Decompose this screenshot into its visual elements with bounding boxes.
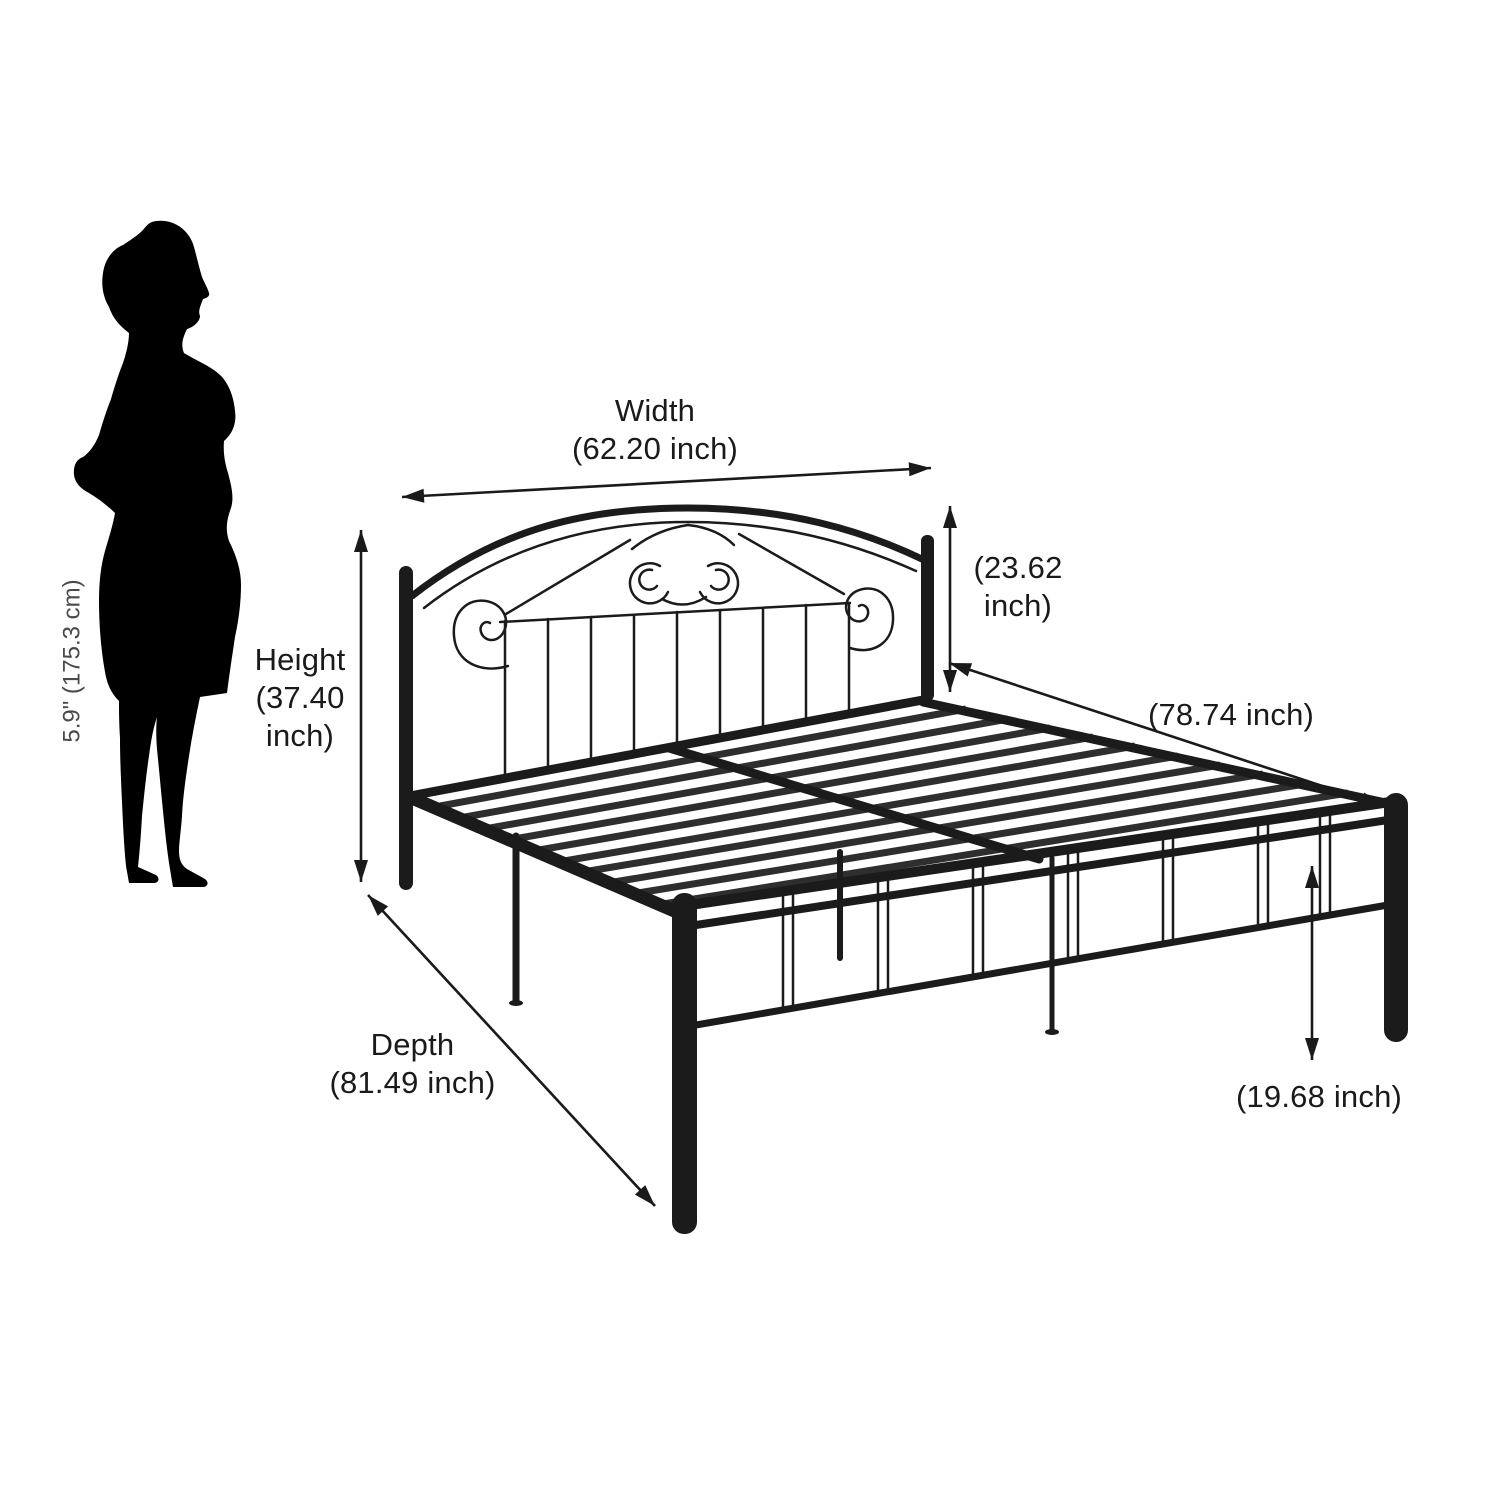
- headboard-height-line2: inch): [938, 587, 1098, 625]
- height-label-line: Height: [214, 641, 386, 679]
- depth-label-line: Depth: [305, 1026, 520, 1064]
- leg-height-dimension-label: (19.68 inch): [1233, 1078, 1405, 1116]
- width-dimension-arrow: [402, 468, 931, 497]
- depth-value-line: (81.49 inch): [305, 1064, 520, 1102]
- length-value-line: (78.74 inch): [1106, 696, 1356, 734]
- height-value-line1: (37.40: [214, 679, 386, 717]
- bed-frame-illustration: [399, 508, 1408, 1234]
- headboard-ornament: [412, 508, 924, 778]
- length-dimension-label: (78.74 inch): [1106, 696, 1356, 734]
- headboard-height-line1: (23.62: [938, 549, 1098, 587]
- woman-silhouette: [74, 221, 241, 887]
- footboard-right-post: [1384, 793, 1408, 1042]
- headboard-left-post: [399, 566, 413, 890]
- footboard-left-post: [672, 893, 697, 1234]
- headboard-height-dimension-label: (23.62 inch): [938, 549, 1098, 625]
- width-dimension-label: Width (62.20 inch): [495, 392, 815, 468]
- person-height-label: 5.9" (175.3 cm): [59, 559, 89, 764]
- width-value-line: (62.20 inch): [495, 430, 815, 468]
- leg-height-value-line: (19.68 inch): [1233, 1078, 1405, 1116]
- footboard-bottom-rail: [696, 905, 1388, 1025]
- bed-deck: [412, 700, 1390, 1035]
- depth-dimension-label: Depth (81.49 inch): [305, 1026, 520, 1102]
- width-label-line: Width: [495, 392, 815, 430]
- dimension-diagram: Width (62.20 inch) Height (37.40 inch) (…: [0, 0, 1500, 1500]
- woman-silhouette-path: [74, 221, 241, 887]
- height-dimension-label: Height (37.40 inch): [214, 641, 386, 755]
- height-value-line2: inch): [214, 717, 386, 755]
